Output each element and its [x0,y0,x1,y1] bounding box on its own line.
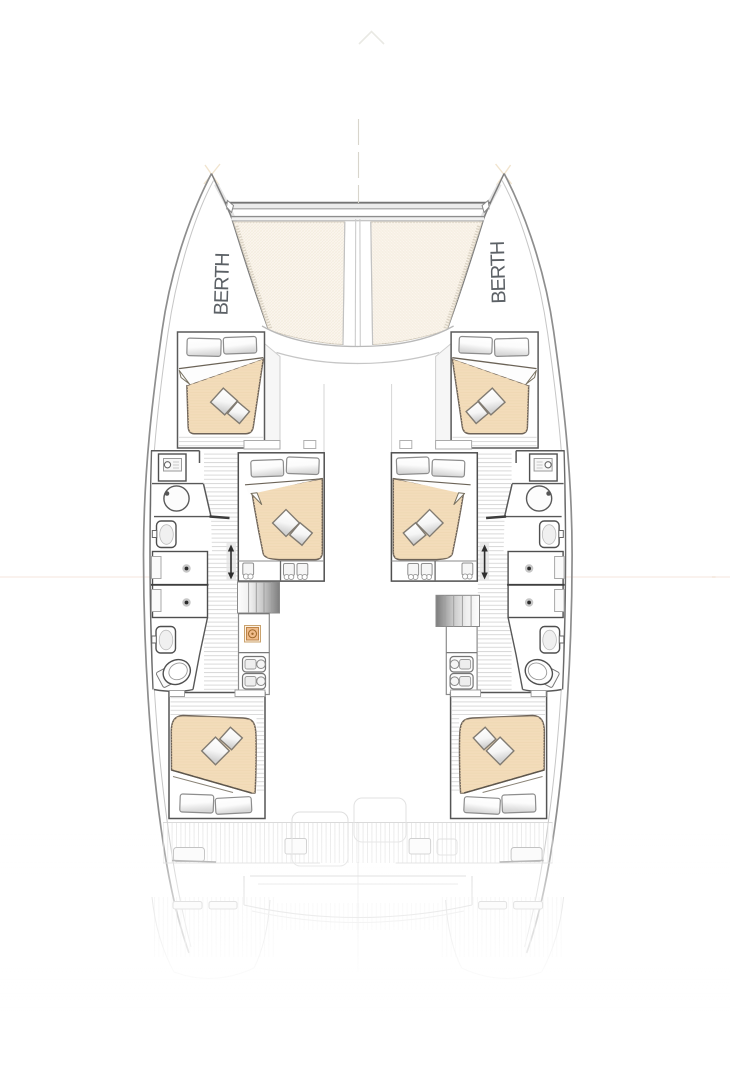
svg-text:BERTH: BERTH [211,253,235,315]
svg-text:BERTH: BERTH [487,241,511,303]
